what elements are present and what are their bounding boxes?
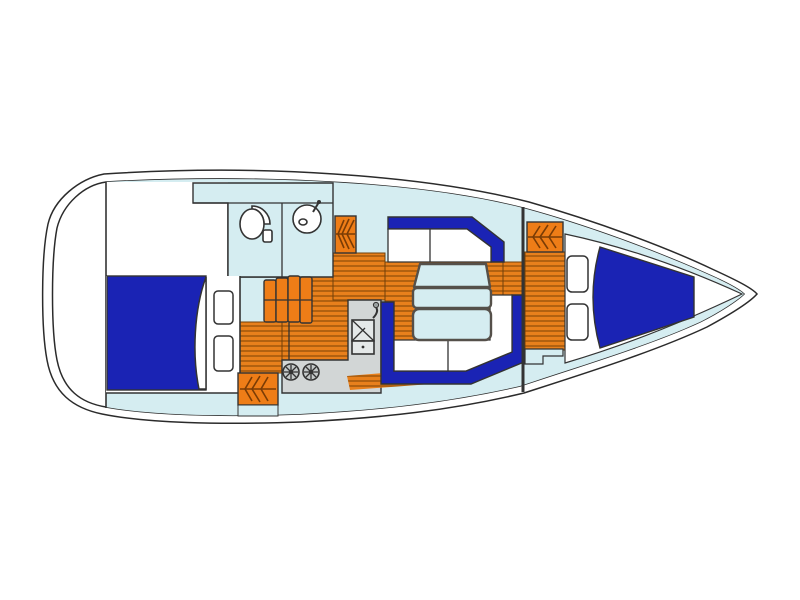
- boat-floor-plan: [0, 0, 800, 600]
- aft-corridor-floor: [238, 322, 282, 373]
- hanging-locker-forward: [527, 222, 563, 252]
- salon-floor-left: [333, 253, 385, 300]
- hanging-locker-aft: [238, 373, 278, 416]
- table-leaf-top: [414, 264, 490, 287]
- aft-cabin: [106, 276, 240, 393]
- forward-cabin-floor: [525, 252, 565, 350]
- aft-pillow-2: [214, 336, 233, 371]
- salon-table: [413, 264, 491, 340]
- forward-pillow-2: [567, 304, 588, 340]
- step-3: [288, 276, 300, 322]
- aft-pillow-1: [214, 291, 233, 324]
- hanging-locker-salon: [335, 216, 356, 253]
- aft-double-berth: [107, 276, 206, 390]
- table-leaf-bottom: [413, 309, 491, 340]
- step-1: [264, 280, 276, 322]
- companionway-steps: [264, 276, 312, 323]
- forward-pillow-1: [567, 256, 588, 292]
- table-leaf-middle: [413, 288, 491, 308]
- aft-locker-base: [238, 405, 278, 416]
